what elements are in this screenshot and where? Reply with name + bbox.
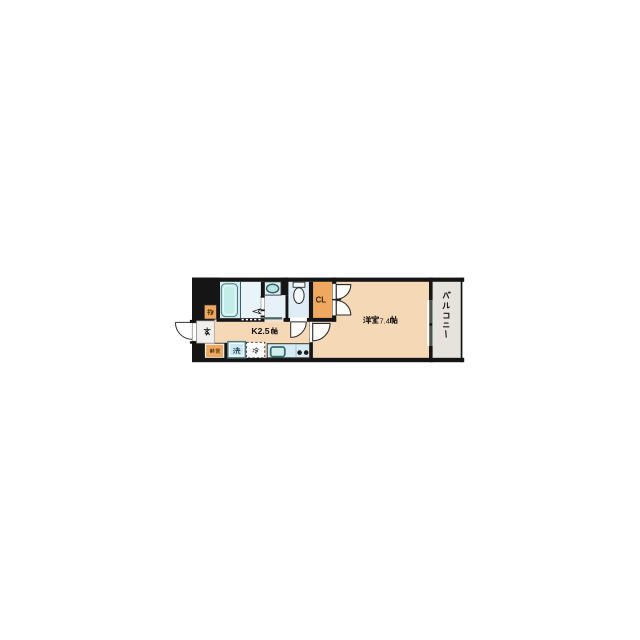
svg-text:CL: CL <box>316 295 327 304</box>
svg-text:7.4: 7.4 <box>379 317 390 326</box>
svg-text:K2.5: K2.5 <box>251 326 269 336</box>
